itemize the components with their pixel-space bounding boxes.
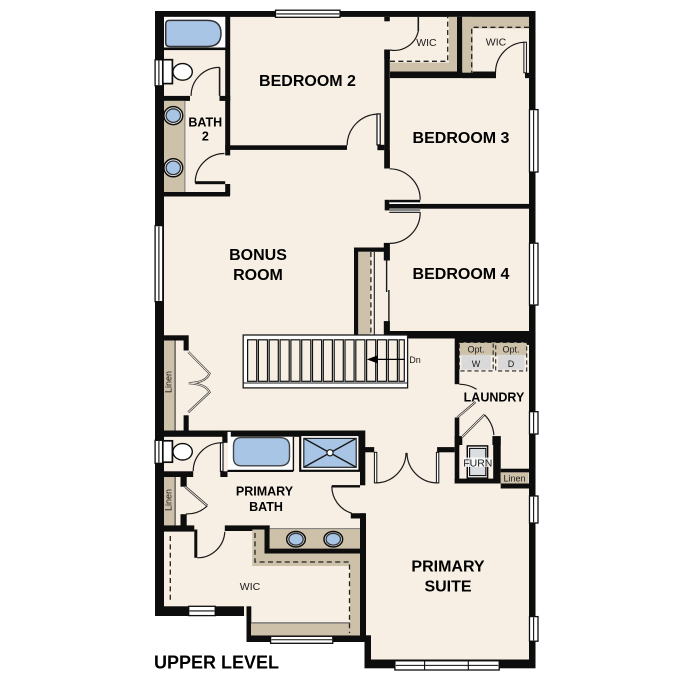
svg-text:BATH: BATH xyxy=(188,115,222,129)
svg-text:D: D xyxy=(508,359,515,369)
svg-text:WIC: WIC xyxy=(486,37,507,49)
svg-text:LAUNDRY: LAUNDRY xyxy=(464,390,525,404)
svg-text:Dn: Dn xyxy=(409,355,421,365)
svg-text:WIC: WIC xyxy=(416,37,437,49)
svg-text:FURN: FURN xyxy=(463,457,492,469)
svg-text:BEDROOM 4: BEDROOM 4 xyxy=(413,266,510,283)
svg-text:W: W xyxy=(472,359,481,369)
svg-text:BEDROOM 2: BEDROOM 2 xyxy=(259,73,356,90)
svg-text:BONUS: BONUS xyxy=(229,247,287,264)
svg-text:Opt.: Opt. xyxy=(467,344,484,354)
svg-text:PRIMARY: PRIMARY xyxy=(411,559,485,576)
svg-text:Linen: Linen xyxy=(503,474,525,484)
svg-text:UPPER LEVEL: UPPER LEVEL xyxy=(154,653,279,673)
svg-text:BEDROOM 3: BEDROOM 3 xyxy=(413,130,510,147)
svg-text:SUITE: SUITE xyxy=(424,579,471,596)
svg-text:Linen: Linen xyxy=(164,489,174,511)
svg-text:WIC: WIC xyxy=(240,581,261,593)
svg-text:2: 2 xyxy=(202,130,209,144)
svg-text:ROOM: ROOM xyxy=(233,267,283,284)
svg-text:PRIMARY: PRIMARY xyxy=(236,485,294,499)
svg-text:Opt.: Opt. xyxy=(502,344,519,354)
svg-text:BATH: BATH xyxy=(249,500,283,514)
svg-text:Linen: Linen xyxy=(164,371,174,393)
